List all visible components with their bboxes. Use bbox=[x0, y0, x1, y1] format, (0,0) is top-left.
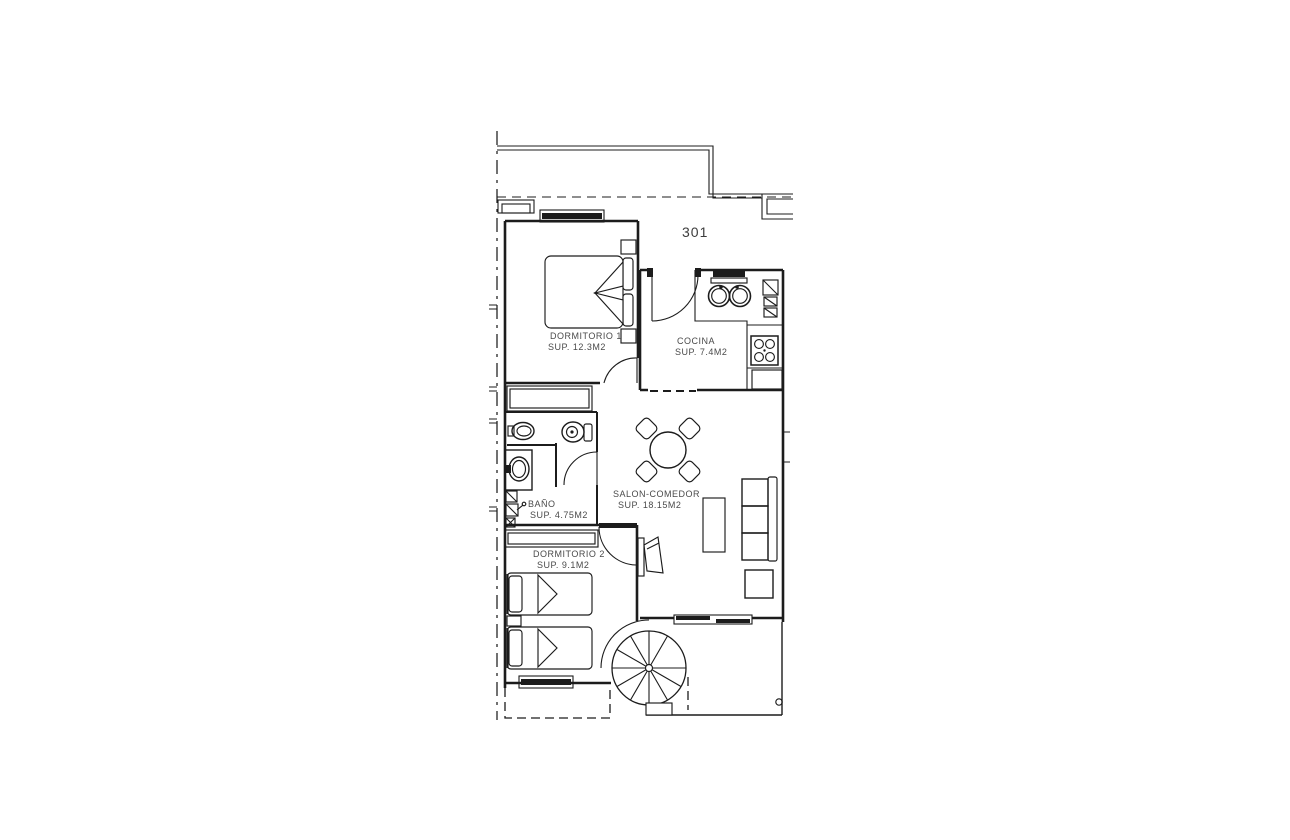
wardrobe-dorm1 bbox=[507, 386, 592, 411]
nightstand bbox=[621, 329, 636, 343]
bidet bbox=[508, 423, 534, 440]
kitchen-fridge bbox=[763, 280, 778, 317]
door-dorm1 bbox=[604, 358, 637, 383]
single-bed-2 bbox=[507, 627, 592, 669]
room-area: SUP. 12.3M2 bbox=[548, 342, 606, 352]
terrace-drain bbox=[776, 699, 782, 705]
window-dorm2 bbox=[519, 676, 573, 688]
property-line-ticks bbox=[489, 305, 497, 511]
toilet bbox=[562, 422, 592, 442]
floor-plan: DORMITORIO 1 SUP. 12.3M2 bbox=[480, 125, 810, 725]
door-bath bbox=[564, 452, 597, 485]
room-area: SUP. 9.1M2 bbox=[537, 560, 589, 570]
coffee-table bbox=[703, 498, 725, 552]
unit-number: 301 bbox=[682, 224, 708, 240]
shower-column bbox=[506, 491, 518, 527]
tv-unit bbox=[638, 537, 663, 576]
room-cocina: COCINA SUP. 7.4M2 bbox=[675, 270, 783, 390]
bath-sink bbox=[505, 450, 532, 490]
pillow bbox=[623, 258, 633, 290]
stair-landing bbox=[646, 703, 672, 715]
pillow bbox=[623, 294, 633, 326]
spiral-stair bbox=[601, 620, 686, 715]
room-area: SUP. 4.75M2 bbox=[530, 510, 588, 520]
landing-left-sill bbox=[498, 200, 534, 213]
room-label: BAÑO bbox=[528, 499, 556, 509]
sliding-door-salon bbox=[674, 615, 752, 624]
kitchen-sink bbox=[709, 271, 751, 307]
wardrobe-dorm2 bbox=[505, 530, 598, 547]
room-salon: SALON-COMEDOR SUP. 18.15M2 bbox=[613, 416, 777, 598]
armchair bbox=[745, 570, 773, 598]
room-dormitorio1: DORMITORIO 1 SUP. 12.3M2 bbox=[507, 240, 636, 411]
kitchen-stove bbox=[751, 336, 778, 365]
kitchen-cabinet bbox=[752, 370, 782, 389]
single-bed-1 bbox=[507, 573, 592, 615]
lower-terrace-dashed bbox=[505, 688, 610, 718]
double-bed bbox=[545, 256, 623, 328]
room-area: SUP. 7.4M2 bbox=[675, 347, 727, 357]
room-bano: BAÑO SUP. 4.75M2 bbox=[505, 422, 592, 527]
page: DORMITORIO 1 SUP. 12.3M2 bbox=[0, 0, 1290, 840]
landing-wall bbox=[497, 146, 762, 198]
room-label: DORMITORIO 1 bbox=[550, 331, 622, 341]
floor-plan-svg: DORMITORIO 1 SUP. 12.3M2 bbox=[480, 125, 810, 725]
entry-door bbox=[647, 268, 701, 321]
nightstand bbox=[507, 616, 521, 626]
room-label: DORMITORIO 2 bbox=[533, 549, 605, 559]
dining-table bbox=[634, 416, 701, 483]
room-area: SUP. 18.15M2 bbox=[618, 500, 681, 510]
stair-post bbox=[646, 665, 653, 672]
sofa bbox=[742, 477, 777, 561]
nightstand bbox=[621, 240, 636, 254]
room-label: COCINA bbox=[677, 336, 715, 346]
landing-right-detail bbox=[762, 194, 793, 219]
room-label: SALON-COMEDOR bbox=[613, 489, 700, 499]
room-dormitorio2: DORMITORIO 2 SUP. 9.1M2 bbox=[505, 530, 605, 669]
